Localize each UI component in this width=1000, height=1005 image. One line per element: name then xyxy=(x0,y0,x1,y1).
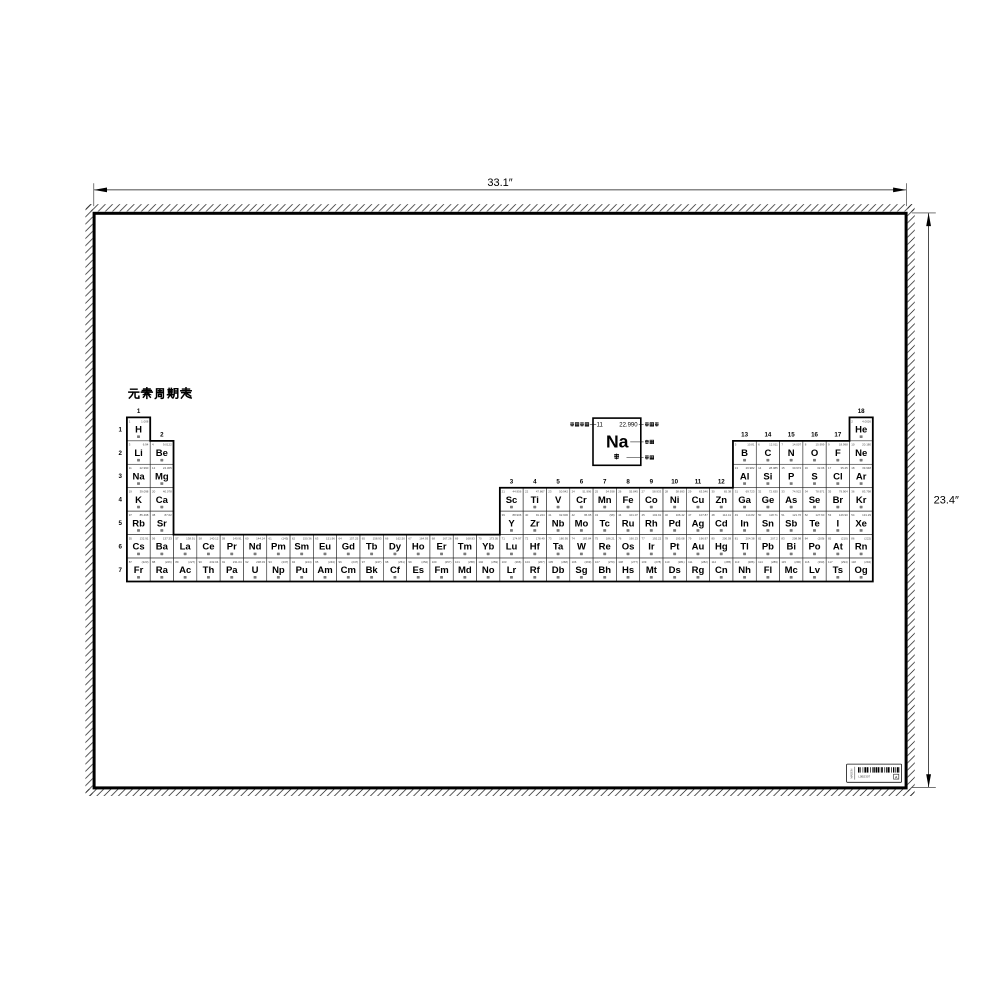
svg-text:Hs: Hs xyxy=(622,565,634,576)
svg-text:(270): (270) xyxy=(608,560,615,564)
svg-text:Pr: Pr xyxy=(227,542,237,553)
svg-text:70: 70 xyxy=(478,537,482,541)
svg-text:82: 82 xyxy=(758,537,762,541)
svg-text:L0B2307: L0B2307 xyxy=(858,774,870,778)
svg-text:Ho: Ho xyxy=(412,542,425,553)
svg-text:100: 100 xyxy=(432,560,437,564)
svg-text:29: 29 xyxy=(688,490,692,494)
svg-text:55: 55 xyxy=(129,537,133,541)
svg-text:46: 46 xyxy=(665,513,669,517)
svg-text:Er: Er xyxy=(437,542,447,553)
svg-text:51: 51 xyxy=(781,513,785,517)
svg-text:Cl: Cl xyxy=(833,471,843,482)
svg-text:32: 32 xyxy=(758,490,762,494)
svg-text:Os: Os xyxy=(622,542,635,553)
svg-text:78.971: 78.971 xyxy=(816,490,825,494)
svg-text:21: 21 xyxy=(502,490,506,494)
svg-text:14: 14 xyxy=(764,431,771,438)
svg-text:75: 75 xyxy=(595,537,599,541)
svg-text:(209): (209) xyxy=(818,537,825,541)
svg-text:200.59: 200.59 xyxy=(722,537,731,541)
svg-text:192.22: 192.22 xyxy=(652,537,661,541)
svg-text:22: 22 xyxy=(525,490,529,494)
svg-text:39.948: 39.948 xyxy=(862,466,871,470)
svg-text:(285): (285) xyxy=(724,560,731,564)
svg-text:Kr: Kr xyxy=(856,495,867,506)
svg-text:(223): (223) xyxy=(142,560,149,564)
svg-text:Ti: Ti xyxy=(531,495,539,506)
svg-text:Pa: Pa xyxy=(226,565,238,576)
svg-text:(98): (98) xyxy=(609,513,614,517)
svg-text:Zr: Zr xyxy=(530,518,540,529)
svg-text:22.990: 22.990 xyxy=(140,466,149,470)
svg-text:Te: Te xyxy=(809,518,819,529)
svg-text:Pb: Pb xyxy=(762,542,774,553)
svg-text:Be: Be xyxy=(156,448,168,459)
svg-text:10: 10 xyxy=(671,478,678,485)
svg-text:Cu: Cu xyxy=(692,495,705,506)
svg-text:Ds: Ds xyxy=(669,565,681,576)
svg-text:2: 2 xyxy=(160,431,164,438)
svg-text:Pt: Pt xyxy=(670,542,680,553)
svg-text:69: 69 xyxy=(455,537,459,541)
svg-text:K: K xyxy=(135,495,142,506)
svg-text:Lu: Lu xyxy=(506,542,518,553)
svg-text:13: 13 xyxy=(741,431,748,438)
svg-text:(267): (267) xyxy=(538,560,545,564)
svg-text:Al: Al xyxy=(740,471,750,482)
svg-text:B: B xyxy=(741,448,748,459)
svg-text:(259): (259) xyxy=(491,560,498,564)
svg-text:Sr: Sr xyxy=(157,518,167,529)
svg-text:63.546: 63.546 xyxy=(699,490,708,494)
svg-text:109: 109 xyxy=(642,560,647,564)
svg-text:(247): (247) xyxy=(375,560,382,564)
svg-text:72: 72 xyxy=(525,537,529,541)
svg-text:Fm: Fm xyxy=(434,565,448,576)
svg-text:118.71: 118.71 xyxy=(769,513,778,517)
svg-text:13: 13 xyxy=(735,466,739,470)
svg-text:(258): (258) xyxy=(468,560,475,564)
svg-text:23: 23 xyxy=(548,490,552,494)
svg-text:15.999: 15.999 xyxy=(816,443,825,447)
svg-text:49: 49 xyxy=(735,513,739,517)
svg-text:In: In xyxy=(740,518,749,529)
svg-text:33: 33 xyxy=(781,490,785,494)
svg-text:58.933: 58.933 xyxy=(652,490,661,494)
svg-text:83: 83 xyxy=(781,537,785,541)
svg-text:(210): (210) xyxy=(841,537,848,541)
svg-text:20: 20 xyxy=(152,490,156,494)
svg-text:162.50: 162.50 xyxy=(396,537,405,541)
svg-text:Ga: Ga xyxy=(738,495,751,506)
svg-text:87.62: 87.62 xyxy=(164,513,172,517)
svg-text:180.95: 180.95 xyxy=(559,537,568,541)
svg-text:Gd: Gd xyxy=(342,542,355,553)
svg-text:(237): (237) xyxy=(282,560,289,564)
svg-text:La: La xyxy=(180,542,192,553)
svg-text:(293): (293) xyxy=(818,560,825,564)
svg-text:14.007: 14.007 xyxy=(792,443,801,447)
svg-text:93: 93 xyxy=(269,560,273,564)
svg-text:151.96: 151.96 xyxy=(326,537,335,541)
svg-text:He: He xyxy=(855,425,867,436)
svg-text:Db: Db xyxy=(552,565,565,576)
svg-text:238.03: 238.03 xyxy=(256,560,265,564)
svg-text:Ru: Ru xyxy=(622,518,635,529)
svg-text:12: 12 xyxy=(152,466,156,470)
svg-text:1.008: 1.008 xyxy=(141,419,149,423)
svg-text:79: 79 xyxy=(688,537,692,541)
svg-text:81: 81 xyxy=(735,537,739,541)
svg-text:138.91: 138.91 xyxy=(186,537,195,541)
svg-text:92.906: 92.906 xyxy=(559,513,568,517)
svg-text:23.4″: 23.4″ xyxy=(934,494,959,506)
svg-text:24.305: 24.305 xyxy=(163,466,172,470)
svg-text:78: 78 xyxy=(665,537,669,541)
svg-text:88.906: 88.906 xyxy=(513,513,522,517)
svg-text:Dy: Dy xyxy=(389,542,402,553)
svg-text:Au: Au xyxy=(692,542,705,553)
svg-text:Nb: Nb xyxy=(552,518,565,529)
svg-text:30.974: 30.974 xyxy=(792,466,801,470)
svg-text:Ba: Ba xyxy=(156,542,169,553)
svg-text:Po: Po xyxy=(808,542,820,553)
svg-text:(251): (251) xyxy=(398,560,405,564)
svg-text:55.845: 55.845 xyxy=(629,490,638,494)
svg-text:150.36: 150.36 xyxy=(303,537,312,541)
svg-text:126.90: 126.90 xyxy=(839,513,848,517)
svg-text:30: 30 xyxy=(711,490,715,494)
svg-text:52: 52 xyxy=(805,513,809,517)
svg-text:Cf: Cf xyxy=(390,565,401,576)
svg-text:Lv: Lv xyxy=(809,565,821,576)
svg-text:Th: Th xyxy=(203,565,215,576)
svg-text:Rn: Rn xyxy=(855,542,868,553)
svg-text:131.29: 131.29 xyxy=(862,513,871,517)
svg-text:50: 50 xyxy=(758,513,762,517)
svg-text:32.06: 32.06 xyxy=(817,466,825,470)
svg-text:Tm: Tm xyxy=(458,542,472,553)
svg-text:12.011: 12.011 xyxy=(769,443,778,447)
svg-text:90: 90 xyxy=(199,560,203,564)
svg-text:99: 99 xyxy=(408,560,412,564)
svg-text:40.078: 40.078 xyxy=(163,490,172,494)
svg-text:89: 89 xyxy=(175,560,179,564)
svg-text:108: 108 xyxy=(618,560,623,564)
svg-text:Cs: Cs xyxy=(132,542,144,553)
svg-text:26.982: 26.982 xyxy=(746,466,755,470)
svg-text:(289): (289) xyxy=(771,560,778,564)
svg-text:144.24: 144.24 xyxy=(256,537,265,541)
svg-text:U: U xyxy=(252,565,259,576)
svg-text:Fe: Fe xyxy=(623,495,634,506)
svg-text:47: 47 xyxy=(688,513,692,517)
svg-text:40: 40 xyxy=(525,513,529,517)
svg-text:Eu: Eu xyxy=(319,542,331,553)
svg-text:24: 24 xyxy=(572,490,576,494)
svg-text:Mo: Mo xyxy=(575,518,589,529)
svg-text:Ra: Ra xyxy=(156,565,169,576)
svg-text:39.098: 39.098 xyxy=(140,490,149,494)
svg-text:62: 62 xyxy=(292,537,296,541)
svg-text:107.87: 107.87 xyxy=(699,513,708,517)
svg-text:O: O xyxy=(811,448,818,459)
svg-text:Hg: Hg xyxy=(715,542,728,553)
svg-text:Ir: Ir xyxy=(648,542,655,553)
svg-text:22.990: 22.990 xyxy=(619,423,638,429)
svg-text:53: 53 xyxy=(828,513,832,517)
svg-text:101: 101 xyxy=(455,560,460,564)
svg-text:101.07: 101.07 xyxy=(629,513,638,517)
svg-text:Cn: Cn xyxy=(715,565,728,576)
svg-text:42: 42 xyxy=(572,513,576,517)
svg-text:Zn: Zn xyxy=(715,495,727,506)
svg-text:72.630: 72.630 xyxy=(769,490,778,494)
svg-text:173.05: 173.05 xyxy=(489,537,498,541)
svg-text:110: 110 xyxy=(665,560,670,564)
svg-text:26: 26 xyxy=(618,490,622,494)
svg-text:97: 97 xyxy=(362,560,366,564)
svg-text:N: N xyxy=(788,448,795,459)
svg-text:18: 18 xyxy=(851,466,855,470)
svg-text:(227): (227) xyxy=(188,560,195,564)
svg-text:114: 114 xyxy=(758,560,763,564)
svg-text:(243): (243) xyxy=(328,560,335,564)
svg-text:56: 56 xyxy=(152,537,156,541)
svg-text:(286): (286) xyxy=(748,560,755,564)
svg-text:Fl: Fl xyxy=(764,565,772,576)
svg-text:231.04: 231.04 xyxy=(233,560,242,564)
svg-text:(281): (281) xyxy=(678,560,685,564)
svg-text:98: 98 xyxy=(385,560,389,564)
svg-text:Sc: Sc xyxy=(506,495,518,506)
svg-text:Xe: Xe xyxy=(855,518,867,529)
svg-text:Pm: Pm xyxy=(271,542,286,553)
svg-text:Md: Md xyxy=(458,565,472,576)
svg-text:10: 10 xyxy=(851,443,855,447)
svg-text:Ag: Ag xyxy=(692,518,705,529)
svg-text:92: 92 xyxy=(245,560,249,564)
svg-text:(294): (294) xyxy=(841,560,848,564)
svg-text:V: V xyxy=(555,495,562,506)
svg-text:94: 94 xyxy=(292,560,296,564)
svg-text:15: 15 xyxy=(788,431,795,438)
svg-text:(244): (244) xyxy=(305,560,312,564)
svg-text:207.2: 207.2 xyxy=(771,537,779,541)
svg-text:No: No xyxy=(482,565,495,576)
svg-text:50.942: 50.942 xyxy=(559,490,568,494)
svg-text:183.84: 183.84 xyxy=(582,537,591,541)
svg-text:Si: Si xyxy=(763,471,772,482)
svg-text:111: 111 xyxy=(688,560,693,564)
svg-text:I: I xyxy=(837,518,840,529)
svg-text:35: 35 xyxy=(828,490,832,494)
svg-text:Ar: Ar xyxy=(856,471,867,482)
svg-text:Pu: Pu xyxy=(296,565,308,576)
svg-text:167.26: 167.26 xyxy=(443,537,452,541)
svg-text:51.996: 51.996 xyxy=(582,490,591,494)
svg-text:S: S xyxy=(811,471,817,482)
svg-text:117: 117 xyxy=(828,560,833,564)
svg-text:107: 107 xyxy=(595,560,600,564)
svg-text:9: 9 xyxy=(650,478,654,485)
svg-text:87: 87 xyxy=(129,560,133,564)
svg-text:102.91: 102.91 xyxy=(652,513,661,517)
svg-text:F: F xyxy=(835,448,841,459)
svg-text:Li: Li xyxy=(134,448,142,459)
svg-text:47.867: 47.867 xyxy=(536,490,545,494)
svg-text:57: 57 xyxy=(175,537,179,541)
svg-text:Y: Y xyxy=(508,518,515,529)
svg-text:45: 45 xyxy=(642,513,646,517)
svg-text:28: 28 xyxy=(665,490,669,494)
svg-text:Ge: Ge xyxy=(762,495,775,506)
svg-text:4: 4 xyxy=(119,497,123,504)
svg-text:(294): (294) xyxy=(864,560,871,564)
svg-text:Ts: Ts xyxy=(833,565,843,576)
svg-text:(268): (268) xyxy=(561,560,568,564)
svg-text:106.42: 106.42 xyxy=(676,513,685,517)
svg-text:Cd: Cd xyxy=(715,518,728,529)
svg-text:2: 2 xyxy=(119,450,123,457)
svg-text:9.0122: 9.0122 xyxy=(163,443,172,447)
svg-text:(257): (257) xyxy=(445,560,452,564)
svg-text:(282): (282) xyxy=(701,560,708,564)
svg-text:Og: Og xyxy=(855,565,868,576)
svg-text:59: 59 xyxy=(222,537,226,541)
svg-text:17: 17 xyxy=(828,466,832,470)
svg-text:H: H xyxy=(135,425,142,436)
svg-text:16: 16 xyxy=(811,431,818,438)
svg-text:43: 43 xyxy=(595,513,599,517)
svg-text:Sm: Sm xyxy=(294,542,309,553)
svg-text:6: 6 xyxy=(119,544,123,551)
svg-text:Sn: Sn xyxy=(762,518,774,529)
svg-text:74.922: 74.922 xyxy=(792,490,801,494)
svg-text:186.21: 186.21 xyxy=(606,537,615,541)
svg-text:127.60: 127.60 xyxy=(816,513,825,517)
svg-text:Ce: Ce xyxy=(202,542,214,553)
svg-text:137.33: 137.33 xyxy=(163,537,172,541)
svg-text:103: 103 xyxy=(502,560,507,564)
svg-text:118: 118 xyxy=(851,560,856,564)
svg-text:Tc: Tc xyxy=(600,518,610,529)
svg-text:102: 102 xyxy=(478,560,483,564)
svg-text:112.41: 112.41 xyxy=(723,513,732,517)
svg-text:(277): (277) xyxy=(631,560,638,564)
svg-text:140.91: 140.91 xyxy=(233,537,242,541)
svg-text:140.12: 140.12 xyxy=(209,537,218,541)
svg-text:86: 86 xyxy=(851,537,855,541)
svg-text:Tl: Tl xyxy=(740,542,748,553)
svg-text:Mc: Mc xyxy=(785,565,798,576)
svg-text:W: W xyxy=(577,542,586,553)
svg-text:14: 14 xyxy=(758,466,762,470)
svg-text:65: 65 xyxy=(362,537,366,541)
svg-text:38: 38 xyxy=(152,513,156,517)
svg-text:Bi: Bi xyxy=(786,542,796,553)
svg-text:158.93: 158.93 xyxy=(373,537,382,541)
svg-text:19: 19 xyxy=(129,490,133,494)
svg-text:105: 105 xyxy=(548,560,553,564)
svg-text:39: 39 xyxy=(502,513,506,517)
svg-text:Fr: Fr xyxy=(134,565,144,576)
svg-text:121.76: 121.76 xyxy=(792,513,801,517)
svg-text:68: 68 xyxy=(432,537,436,541)
svg-text:20.180: 20.180 xyxy=(862,443,871,447)
svg-text:15: 15 xyxy=(781,466,785,470)
svg-text:(290): (290) xyxy=(794,560,801,564)
svg-text:16: 16 xyxy=(805,466,809,470)
svg-text:6.94: 6.94 xyxy=(143,443,149,447)
svg-text:71: 71 xyxy=(502,537,506,541)
svg-text:113: 113 xyxy=(735,560,740,564)
svg-text:63: 63 xyxy=(315,537,319,541)
svg-text:85: 85 xyxy=(828,537,832,541)
svg-text:Mt: Mt xyxy=(646,565,658,576)
svg-text:Rf: Rf xyxy=(530,565,541,576)
svg-text:Sb: Sb xyxy=(785,518,797,529)
svg-text:5: 5 xyxy=(556,478,560,485)
svg-text:115: 115 xyxy=(781,560,786,564)
svg-text:174.97: 174.97 xyxy=(513,537,522,541)
svg-text:106: 106 xyxy=(572,560,577,564)
svg-text:Nh: Nh xyxy=(738,565,751,576)
svg-text:Rg: Rg xyxy=(692,565,705,576)
svg-text:61: 61 xyxy=(269,537,273,541)
svg-text:(247): (247) xyxy=(351,560,358,564)
svg-text:60: 60 xyxy=(245,537,249,541)
svg-text:Lr: Lr xyxy=(507,565,517,576)
svg-text:Ca: Ca xyxy=(156,495,169,506)
svg-text:64: 64 xyxy=(338,537,342,541)
svg-text:7: 7 xyxy=(603,478,607,485)
svg-text:12: 12 xyxy=(718,478,725,485)
svg-text:Rh: Rh xyxy=(645,518,658,529)
svg-text:73: 73 xyxy=(548,537,552,541)
svg-text:36: 36 xyxy=(851,490,855,494)
svg-text:85.468: 85.468 xyxy=(140,513,149,517)
svg-text:190.23: 190.23 xyxy=(629,537,638,541)
svg-text:69.723: 69.723 xyxy=(746,490,755,494)
svg-text:(266): (266) xyxy=(515,560,522,564)
svg-text:34: 34 xyxy=(805,490,809,494)
svg-text:17: 17 xyxy=(834,431,841,438)
svg-text:10.81: 10.81 xyxy=(747,443,755,447)
svg-text:Ta: Ta xyxy=(553,542,564,553)
svg-text:1: 1 xyxy=(119,426,123,433)
svg-text:(252): (252) xyxy=(421,560,428,564)
svg-text:84: 84 xyxy=(805,537,809,541)
svg-text:Es: Es xyxy=(412,565,424,576)
svg-text:(222): (222) xyxy=(864,537,871,541)
svg-text:Rb: Rb xyxy=(132,518,145,529)
svg-text:Cr: Cr xyxy=(576,495,587,506)
svg-text:Bh: Bh xyxy=(598,565,611,576)
svg-text:Na: Na xyxy=(606,431,629,451)
svg-text:Br: Br xyxy=(833,495,844,506)
svg-text:132.91: 132.91 xyxy=(140,537,149,541)
svg-text:112: 112 xyxy=(711,560,716,564)
svg-text:178.49: 178.49 xyxy=(536,537,545,541)
svg-text:77: 77 xyxy=(642,537,646,541)
svg-text:11: 11 xyxy=(695,478,702,485)
svg-text:28.085: 28.085 xyxy=(769,466,778,470)
svg-text:54: 54 xyxy=(851,513,855,517)
svg-text:79.904: 79.904 xyxy=(839,490,848,494)
svg-text:MADEIN: MADEIN xyxy=(849,768,853,778)
